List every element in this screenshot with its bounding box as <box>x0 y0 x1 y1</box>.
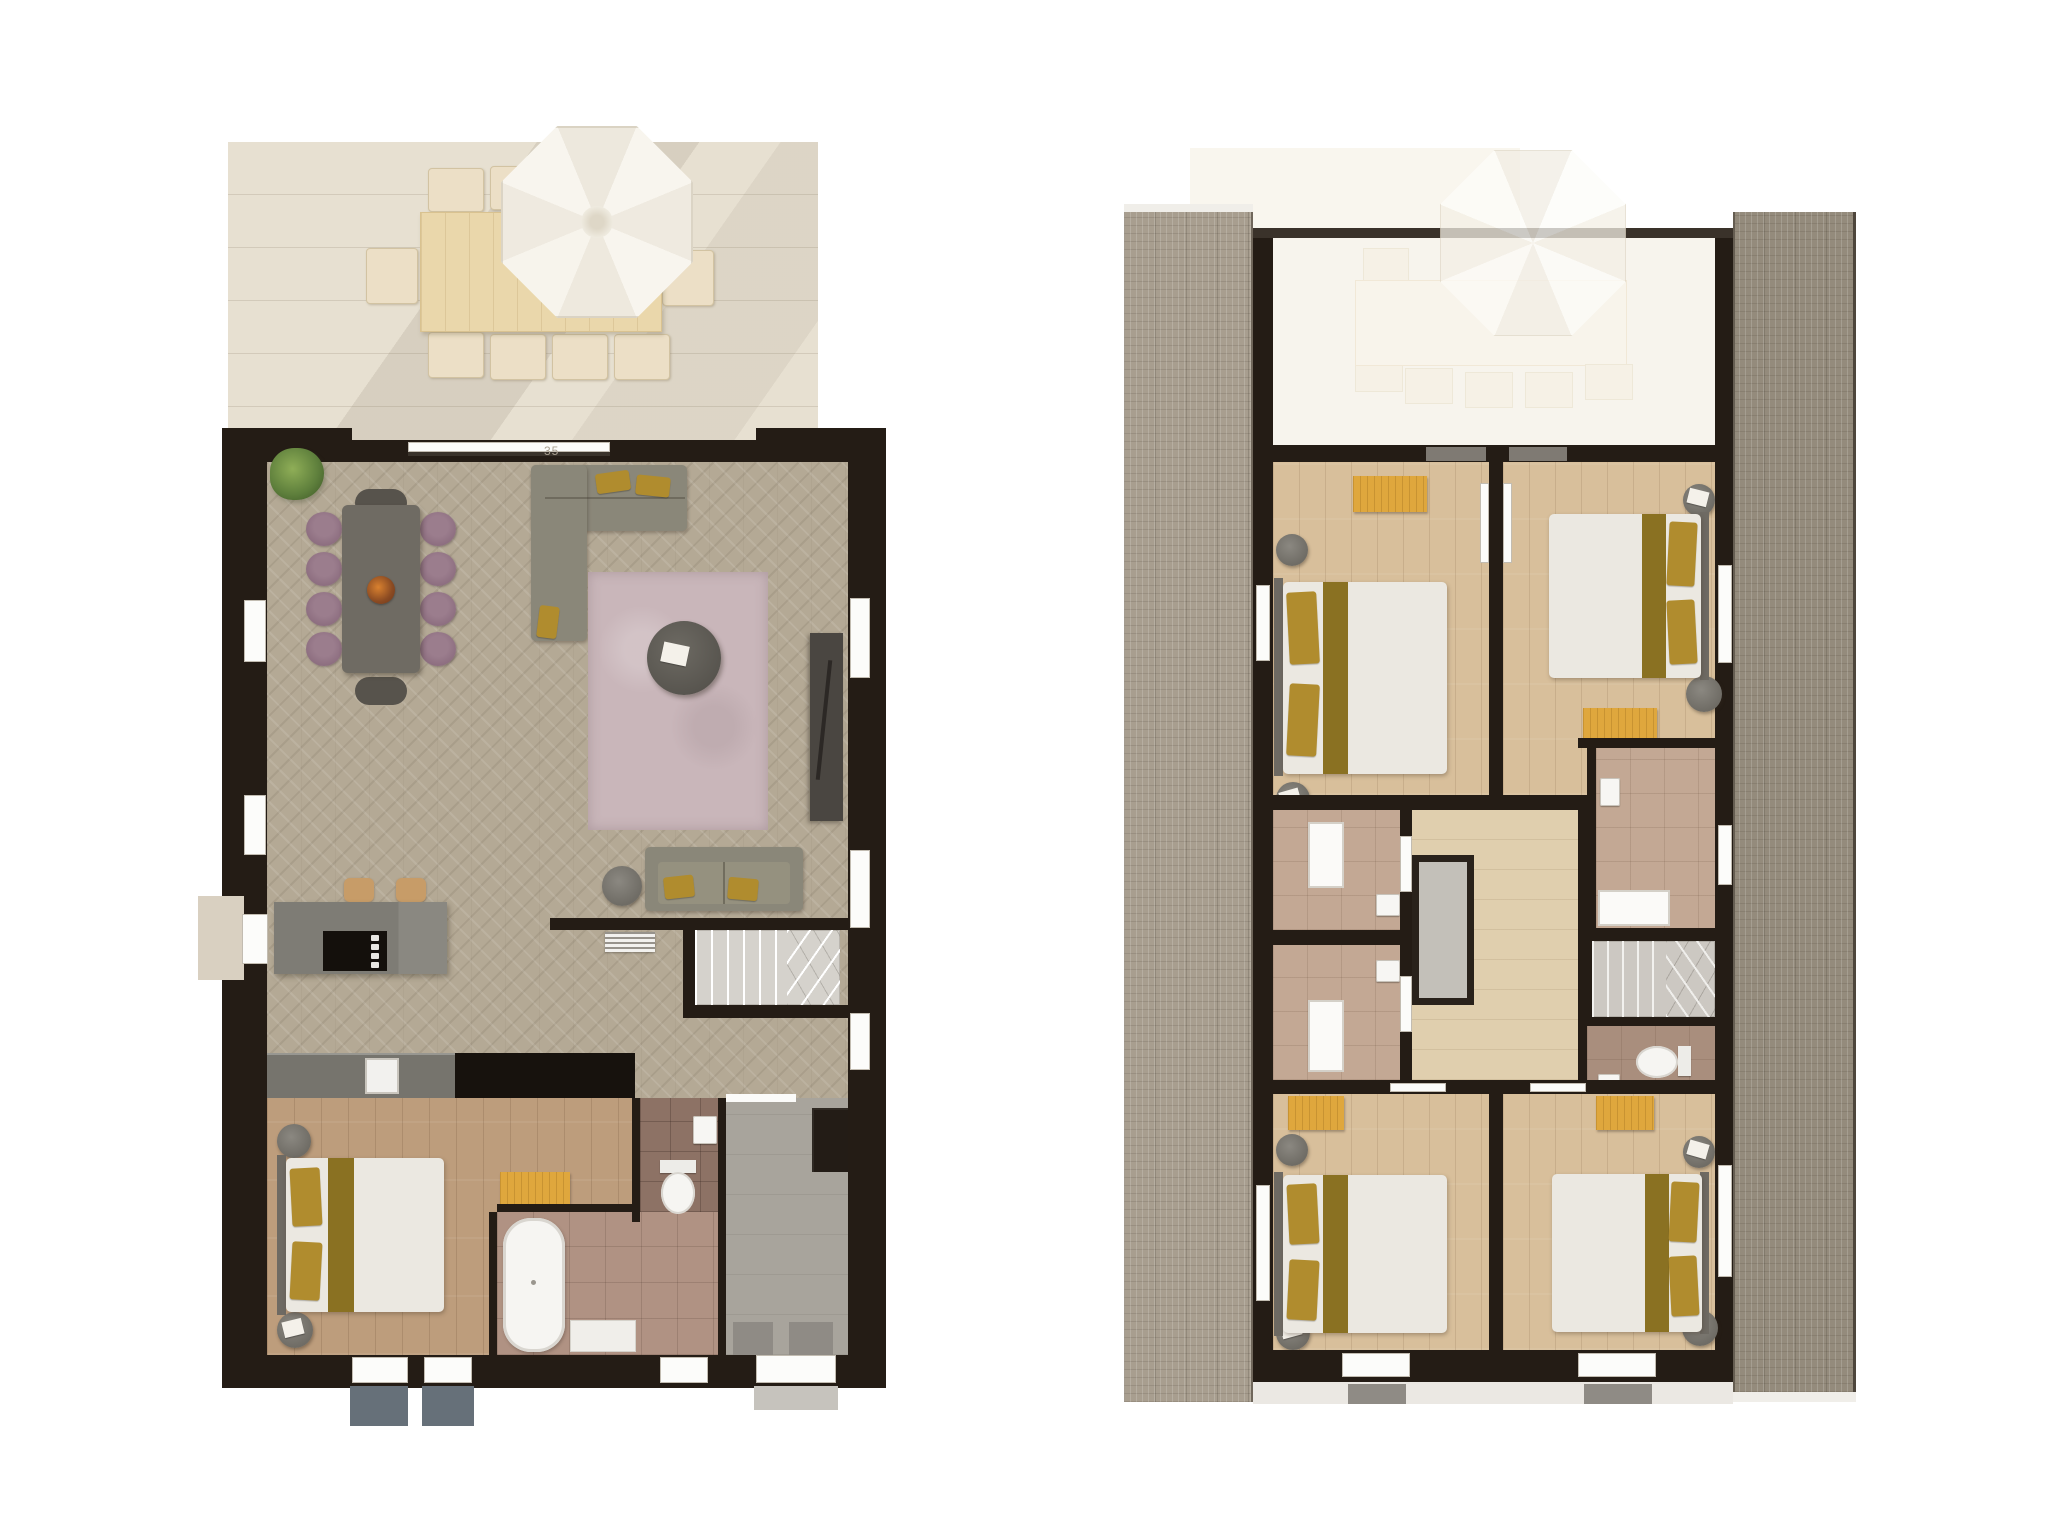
bed-runner <box>1642 514 1666 678</box>
bench <box>1288 1096 1344 1130</box>
partition-wall <box>1489 462 1503 795</box>
staircase-upper <box>1592 941 1715 1017</box>
ghost-chair <box>1585 364 1633 400</box>
bedside-table <box>1686 676 1722 712</box>
window <box>1342 1353 1410 1377</box>
wc-bowl <box>1636 1046 1678 1078</box>
floor-plan-canvas: 35 <box>0 0 2048 1536</box>
shower-tray <box>1308 822 1344 888</box>
washbasin <box>1600 778 1620 806</box>
bed-runner <box>1323 582 1348 774</box>
bed-pillow <box>1286 1183 1319 1244</box>
door-mat <box>1426 447 1486 461</box>
bed-pillow <box>1666 599 1697 664</box>
bedroom-back-wall <box>1273 1080 1715 1094</box>
door-threshold <box>1530 1083 1586 1092</box>
shower-tray <box>1598 890 1670 926</box>
bed-headboard <box>1700 512 1709 680</box>
roof-slope-left <box>1124 212 1253 1402</box>
bedside-table <box>1276 534 1308 566</box>
outdoor-mat <box>1348 1384 1406 1404</box>
window <box>1578 1353 1656 1377</box>
bench <box>1353 476 1427 512</box>
bed-pillow <box>1286 683 1320 756</box>
door-threshold <box>1480 483 1489 563</box>
door-mat <box>1509 447 1567 461</box>
walkway <box>1253 1382 1733 1404</box>
bench <box>1583 708 1657 742</box>
bed-pillow <box>1668 1181 1699 1242</box>
stair-wall <box>1578 941 1592 1025</box>
bed-pillow <box>1666 521 1697 586</box>
bed-headboard <box>1274 1172 1283 1336</box>
bed-runner <box>1323 1175 1348 1333</box>
bed-headboard <box>1274 578 1283 776</box>
bed-pillow <box>1668 1255 1699 1316</box>
bedside-table <box>1276 1134 1308 1166</box>
ghost-parasol <box>1440 150 1626 336</box>
window <box>1718 565 1732 663</box>
exterior-wall-rear <box>1253 1350 1733 1382</box>
ghost-chair <box>1465 372 1513 408</box>
door-threshold <box>1503 483 1512 563</box>
window <box>1256 585 1270 661</box>
window <box>1718 825 1732 885</box>
stair-winder <box>1666 941 1715 1017</box>
roof-slope-right <box>1733 212 1856 1400</box>
bathroom-wall <box>1578 738 1715 748</box>
first-floor-plan <box>0 0 1024 1536</box>
bench <box>1596 1096 1654 1130</box>
stair-wall <box>1578 1017 1715 1026</box>
stair-wall <box>1578 928 1715 941</box>
bed-pillow <box>1286 591 1320 664</box>
washbasin <box>1376 894 1400 916</box>
door-threshold <box>1400 976 1412 1032</box>
wc-tank <box>1678 1046 1691 1076</box>
void-opening <box>1412 855 1474 1005</box>
door-threshold <box>1400 836 1412 892</box>
bedroom-front-wall <box>1273 445 1715 462</box>
stair-treads <box>1592 941 1666 1017</box>
door-threshold <box>1390 1083 1446 1092</box>
ghost-chair <box>1405 368 1453 404</box>
outdoor-mat <box>1584 1384 1652 1404</box>
ghost-chair <box>1363 248 1409 282</box>
bed-runner <box>1645 1174 1669 1332</box>
ghost-chair <box>1525 372 1573 408</box>
shower-tray <box>1308 1000 1344 1072</box>
shower-divider-wall <box>1273 930 1400 945</box>
washbasin <box>1376 960 1400 982</box>
window <box>1256 1185 1270 1301</box>
partition-wall <box>1489 1094 1503 1350</box>
bed-pillow <box>1286 1259 1319 1320</box>
bathroom-wall <box>1587 748 1596 930</box>
window <box>1718 1165 1732 1277</box>
roof-edge <box>1733 1392 1856 1402</box>
